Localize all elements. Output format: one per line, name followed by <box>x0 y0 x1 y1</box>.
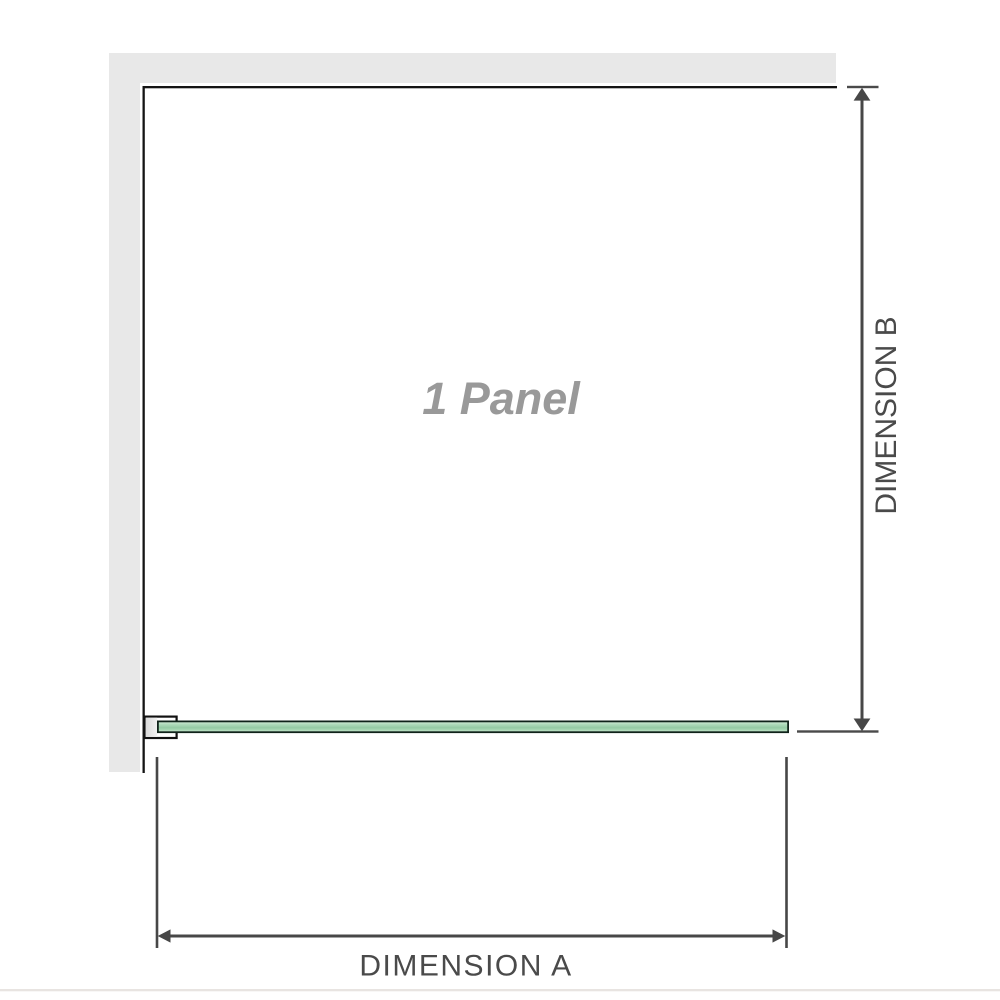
svg-text:DIMENSION B: DIMENSION B <box>870 316 903 514</box>
svg-text:1 Panel: 1 Panel <box>422 373 581 424</box>
svg-text:DIMENSION A: DIMENSION A <box>359 950 572 983</box>
